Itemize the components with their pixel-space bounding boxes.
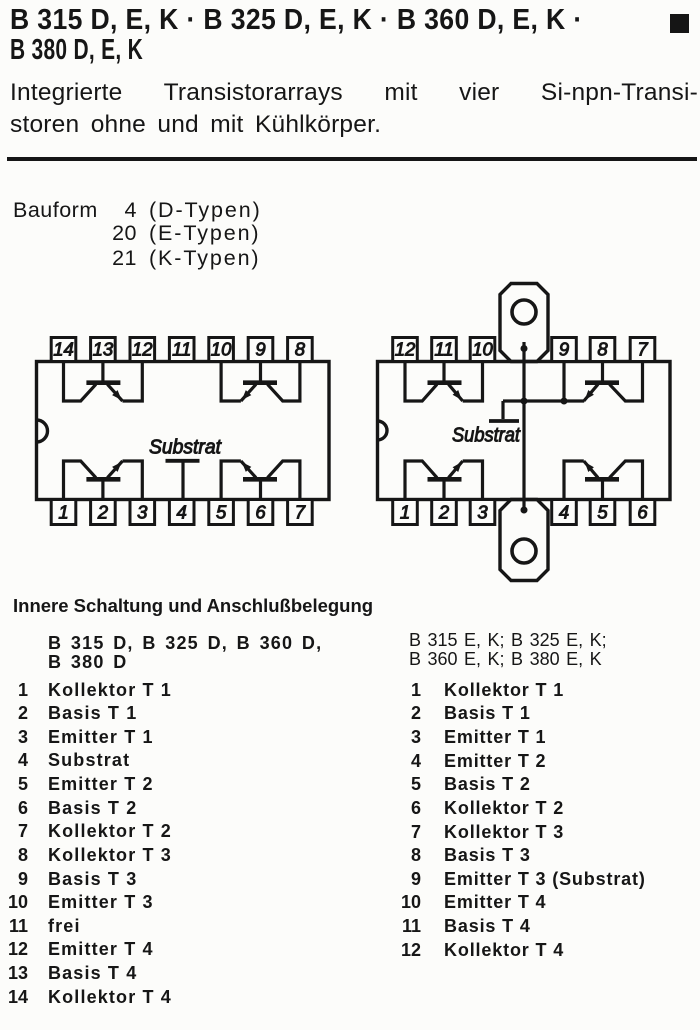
svg-text:3: 3 xyxy=(137,502,148,523)
svg-text:9: 9 xyxy=(255,338,265,359)
svg-text:11: 11 xyxy=(434,338,453,359)
svg-text:10: 10 xyxy=(472,338,493,359)
svg-text:2: 2 xyxy=(97,502,109,523)
svg-text:6: 6 xyxy=(255,502,266,523)
svg-text:4: 4 xyxy=(177,502,187,523)
svg-text:8: 8 xyxy=(597,338,608,359)
svg-text:Substrat: Substrat xyxy=(149,436,222,459)
svg-text:5: 5 xyxy=(597,502,608,523)
svg-text:4: 4 xyxy=(559,502,569,523)
svg-text:7: 7 xyxy=(295,502,306,523)
svg-text:2: 2 xyxy=(438,502,450,523)
svg-text:12: 12 xyxy=(395,338,416,359)
svg-text:6: 6 xyxy=(637,502,648,523)
svg-text:1: 1 xyxy=(400,502,410,523)
svg-text:10: 10 xyxy=(211,338,232,359)
svg-text:7: 7 xyxy=(637,338,648,359)
svg-text:3: 3 xyxy=(477,502,488,523)
svg-text:9: 9 xyxy=(559,338,569,359)
svg-text:Substrat: Substrat xyxy=(452,424,521,447)
svg-text:11: 11 xyxy=(172,338,191,359)
svg-text:8: 8 xyxy=(295,338,306,359)
svg-text:13: 13 xyxy=(93,338,114,359)
svg-text:5: 5 xyxy=(216,502,227,523)
svg-text:14: 14 xyxy=(53,338,74,359)
svg-text:1: 1 xyxy=(58,502,68,523)
svg-text:12: 12 xyxy=(132,338,153,359)
